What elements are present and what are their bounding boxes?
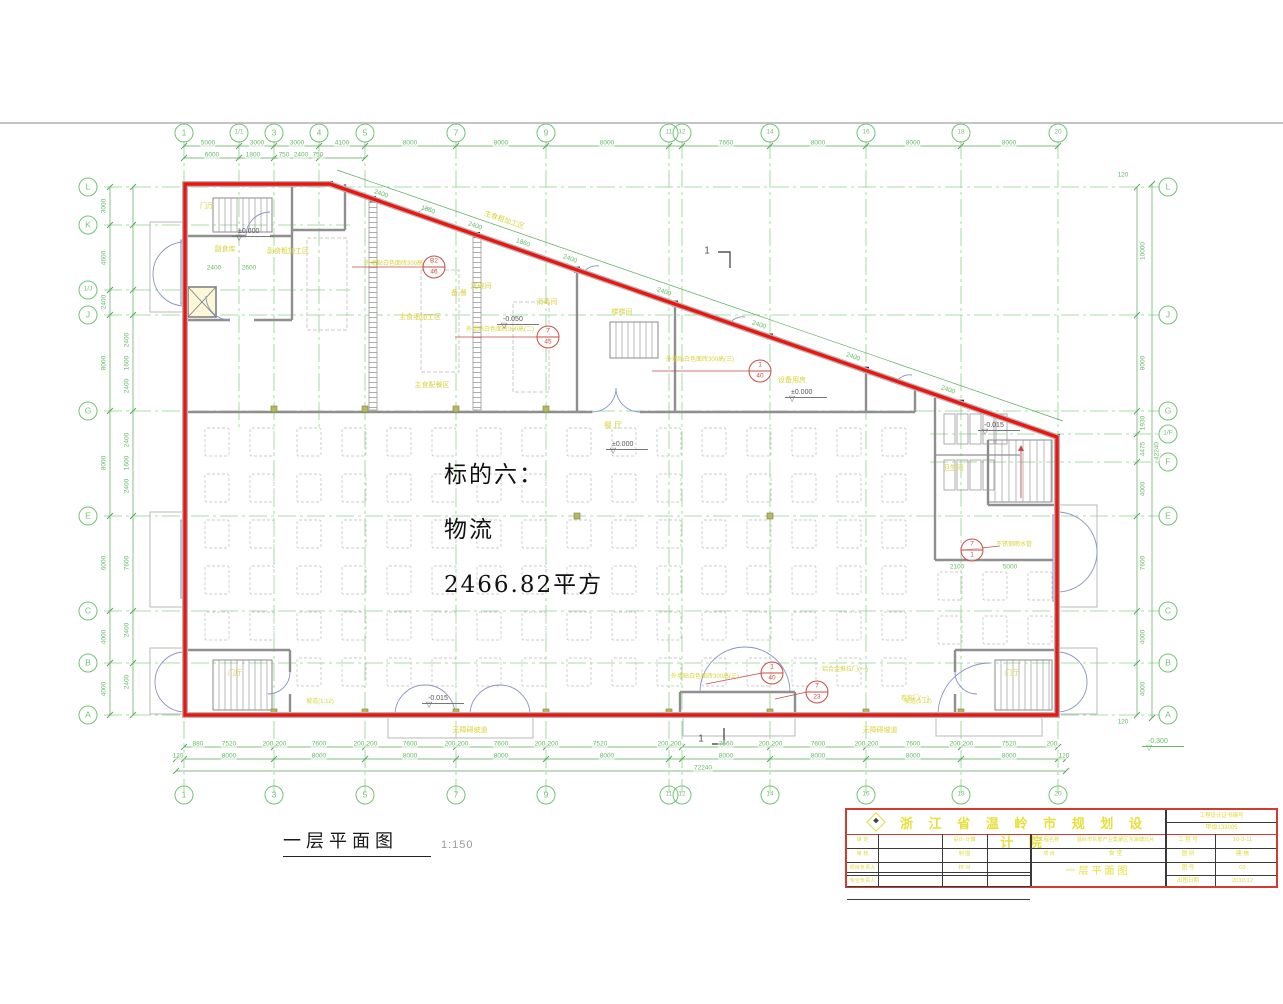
dining-table bbox=[983, 616, 1007, 644]
axis-bubble: 1 bbox=[175, 124, 194, 143]
dining-table bbox=[702, 520, 726, 548]
kitchen-equipment bbox=[307, 238, 347, 330]
axis-bubble: 5 bbox=[356, 786, 375, 805]
axis-bubble: F bbox=[1159, 453, 1178, 472]
dining-table bbox=[747, 520, 771, 548]
dimension-text: 2400 bbox=[124, 378, 131, 394]
detail-callout: 745 bbox=[537, 326, 560, 349]
room-label: 坡道(1:12) bbox=[904, 698, 932, 706]
title-block: 浙 江 省 温 岭 市 规 划 设 计 院 一层平面图 工程设计证书编号甲级13… bbox=[845, 808, 1278, 888]
section-mark-number: 1 bbox=[704, 246, 710, 257]
dining-table bbox=[1028, 616, 1052, 644]
dimension-text: 200 bbox=[771, 741, 784, 748]
dining-table bbox=[702, 658, 726, 686]
dimension-text: 42240 bbox=[1154, 441, 1161, 461]
titleblock-line bbox=[1030, 862, 1165, 863]
caption-underline bbox=[283, 856, 431, 857]
dining-table bbox=[1028, 572, 1052, 600]
titleblock-field-value: 10-3-11 bbox=[1209, 837, 1276, 844]
dimension-text: 8000 bbox=[1001, 753, 1017, 760]
column bbox=[543, 406, 549, 412]
dining-table bbox=[522, 658, 546, 686]
room-label: 门厅 bbox=[1005, 670, 1019, 678]
callout-sheet-number: 40 bbox=[762, 674, 783, 683]
dining-table bbox=[342, 658, 366, 686]
axis-bubble: 14 bbox=[761, 124, 780, 143]
dining-table bbox=[387, 658, 411, 686]
dimension-text: 8000 bbox=[493, 140, 509, 147]
cad-floorplan-sheet: 标的六： 物流 2466.82平方 一层平面图 1:150 浙 江 省 温 岭 … bbox=[0, 0, 1283, 1004]
dimension-text: 7520 bbox=[1001, 741, 1017, 748]
titleblock-line bbox=[847, 834, 1276, 835]
dimension-text: 200 bbox=[457, 741, 470, 748]
room-label: 坡道(1:12) bbox=[306, 698, 334, 706]
dining-table bbox=[747, 612, 771, 640]
room-label: 门厅 bbox=[228, 670, 242, 678]
hatched-wall bbox=[473, 236, 481, 410]
room-label: 不锈钢雨水管 bbox=[996, 541, 1032, 549]
axis-bubble: 1/1 bbox=[230, 124, 249, 143]
dimension-text: 200 bbox=[657, 741, 670, 748]
level-marker: -0.050▽ bbox=[503, 316, 523, 323]
door-swing bbox=[1057, 552, 1097, 592]
dimension-text: 3000 bbox=[249, 140, 265, 147]
dining-table bbox=[837, 428, 861, 456]
dimension-text: 5000 bbox=[200, 140, 216, 147]
level-line bbox=[497, 324, 539, 325]
level-line bbox=[785, 397, 827, 398]
dining-table bbox=[882, 658, 906, 686]
dining-table bbox=[837, 474, 861, 502]
axis-bubble: 16 bbox=[857, 124, 876, 143]
dining-table bbox=[205, 474, 229, 502]
titleblock-line bbox=[1167, 862, 1276, 863]
cert-number: 甲级133005 bbox=[1167, 825, 1276, 832]
dimension-text: 120 bbox=[1117, 172, 1130, 179]
dimension-text: 120 bbox=[1058, 753, 1071, 760]
dining-table bbox=[297, 566, 321, 594]
dining-table bbox=[882, 520, 906, 548]
section-mark-line bbox=[718, 252, 730, 268]
dimension-text: 200 bbox=[854, 741, 867, 748]
toilet-stall bbox=[970, 414, 981, 444]
dimension-text: 2400 bbox=[206, 265, 222, 272]
titleblock-field-label: 图 号 bbox=[1167, 865, 1209, 872]
titleblock-field-label: 图 别 bbox=[1167, 851, 1209, 858]
toilet-stall bbox=[944, 414, 955, 444]
dining-table bbox=[792, 612, 816, 640]
dining-table bbox=[882, 612, 906, 640]
dining-table bbox=[250, 566, 274, 594]
detail-callout: 140 bbox=[761, 662, 784, 685]
dimension-text: 8000 bbox=[599, 753, 615, 760]
detail-callout: 71 bbox=[961, 539, 984, 562]
dining-table bbox=[477, 658, 501, 686]
column bbox=[362, 406, 368, 412]
dining-table bbox=[938, 616, 962, 644]
dimension-text: 200 bbox=[534, 741, 547, 748]
dimension-text: 880 bbox=[192, 741, 205, 748]
column bbox=[453, 406, 459, 412]
dining-table bbox=[747, 474, 771, 502]
dimension-text: 2400 bbox=[293, 152, 309, 159]
dimension-text: 200 bbox=[867, 741, 880, 748]
dimension-text: 750 bbox=[312, 152, 325, 159]
dining-table bbox=[702, 474, 726, 502]
level-marker: ±0.000▽ bbox=[791, 389, 812, 396]
axis-grid bbox=[104, 141, 1160, 793]
axis-bubble: L bbox=[79, 178, 98, 197]
door-swing bbox=[268, 672, 290, 694]
dining-table bbox=[387, 566, 411, 594]
dimension-text: 7600 bbox=[402, 741, 418, 748]
porch-ramp bbox=[150, 222, 185, 312]
axis-bubble: A bbox=[1159, 706, 1178, 725]
dining-table bbox=[297, 612, 321, 640]
dimension-text: 4000 bbox=[1140, 681, 1147, 697]
door-swing bbox=[153, 242, 185, 274]
dimension-text: 2400 bbox=[124, 622, 131, 638]
door-swing bbox=[155, 652, 185, 682]
titleblock-role-label: 项目负责人 bbox=[847, 865, 878, 872]
titleblock-line bbox=[847, 848, 1030, 849]
institute-name: 浙 江 省 温 岭 市 规 划 设 计 院 bbox=[889, 813, 1159, 851]
axis-bubble: 9 bbox=[537, 124, 556, 143]
dining-table bbox=[250, 612, 274, 640]
titleblock-field-value: 建 施 bbox=[1209, 851, 1276, 858]
dimension-text: 7520 bbox=[221, 741, 237, 748]
detail-callout: 723 bbox=[806, 681, 829, 704]
drawing-caption: 一层平面图 1:150 bbox=[283, 827, 431, 857]
level-line bbox=[606, 449, 648, 450]
callout-detail-number: 7 bbox=[807, 682, 828, 693]
dimension-text: 2400 bbox=[124, 478, 131, 494]
axis-bubble: E bbox=[79, 507, 98, 526]
room-label: 外墙贴白色面砖300高(三) bbox=[671, 673, 739, 681]
dimension-text: 200 bbox=[262, 741, 275, 748]
dimension-text: 7600 bbox=[311, 741, 327, 748]
door-swing bbox=[955, 672, 977, 694]
axis-bubble: 3 bbox=[265, 786, 284, 805]
room-label: 副食粗加工区 bbox=[267, 248, 309, 256]
dimension-text: 7600 bbox=[493, 741, 509, 748]
staircase bbox=[213, 660, 272, 710]
axis-bubble: L bbox=[1159, 178, 1178, 197]
dimension-text: 5000 bbox=[1002, 564, 1018, 571]
item-label: 项 目 bbox=[1032, 851, 1066, 858]
axis-bubble: C bbox=[79, 602, 98, 621]
level-line bbox=[1142, 746, 1184, 747]
dining-table bbox=[612, 474, 636, 502]
axis-bubble: 12 bbox=[673, 786, 692, 805]
axis-bubble: 1/J bbox=[79, 281, 98, 300]
dining-table bbox=[983, 572, 1007, 600]
toilet-stall bbox=[957, 414, 968, 444]
axis-bubble: 18 bbox=[952, 786, 971, 805]
room-label: 副食库 bbox=[215, 246, 236, 254]
axis-bubble: 12 bbox=[673, 124, 692, 143]
dining-table bbox=[250, 520, 274, 548]
room-label: 无障碍坡道 bbox=[863, 727, 898, 735]
dimension-text: 4000 bbox=[101, 629, 108, 645]
dining-table bbox=[792, 520, 816, 548]
room-label: 外墙贴白色面砖300高(三) bbox=[666, 356, 734, 364]
callout-sheet-number: 1 bbox=[962, 551, 983, 560]
dimension-text: 2400 bbox=[124, 432, 131, 448]
titleblock-field-value: 2010.12 bbox=[1209, 878, 1276, 885]
dimension-text: 8000 bbox=[810, 753, 826, 760]
door-swing bbox=[1057, 682, 1087, 712]
axis-bubble: B bbox=[1159, 654, 1178, 673]
dimension-text: 8000 bbox=[1140, 355, 1147, 371]
dimension-text: 750 bbox=[278, 152, 291, 159]
titleblock-line bbox=[847, 862, 1030, 863]
dining-table bbox=[792, 474, 816, 502]
titleblock-line bbox=[878, 834, 879, 886]
staircase bbox=[213, 198, 272, 232]
dining-table bbox=[882, 428, 906, 456]
dimension-text: 200 bbox=[353, 741, 366, 748]
dimension-text: 200 bbox=[758, 741, 771, 748]
level-marker: ±0.000▽ bbox=[612, 441, 633, 448]
dimension-text: 200 bbox=[366, 741, 379, 748]
dimension-text: 4000 bbox=[1140, 481, 1147, 497]
detail-callout: 140 bbox=[749, 360, 772, 383]
callout-detail-number: 7 bbox=[962, 540, 983, 551]
dimension-text: 2400 bbox=[124, 674, 131, 690]
dining-table bbox=[837, 520, 861, 548]
dining-table bbox=[205, 428, 229, 456]
room-label: 外墙贴白色面砖300高(二) bbox=[466, 326, 534, 334]
dining-table bbox=[612, 658, 636, 686]
dimension-text: 7660 bbox=[718, 741, 734, 748]
dining-table bbox=[612, 612, 636, 640]
titleblock-line bbox=[1167, 875, 1276, 876]
door-swing bbox=[1057, 652, 1087, 682]
level-marker: -0.300▽ bbox=[1148, 738, 1168, 745]
dining-table bbox=[702, 612, 726, 640]
dining-table bbox=[342, 520, 366, 548]
institute-logo-icon bbox=[866, 812, 886, 832]
titleblock-line bbox=[847, 875, 1030, 876]
dimension-text: 120 bbox=[1117, 719, 1130, 726]
door-swing bbox=[938, 663, 990, 715]
highlight-line-1: 标的六： bbox=[444, 448, 603, 503]
highlight-annotation: 标的六： 物流 2466.82平方 bbox=[444, 448, 603, 613]
dimension-text: 7600 bbox=[124, 555, 131, 571]
dimension-text: 8000 bbox=[810, 140, 826, 147]
axis-bubble: C bbox=[1159, 602, 1178, 621]
dimension-text: 8000 bbox=[905, 753, 921, 760]
axis-bubble: 20 bbox=[1049, 786, 1068, 805]
callout-sheet-number: 45 bbox=[538, 338, 559, 347]
door-swing bbox=[500, 685, 530, 715]
dining-table bbox=[387, 428, 411, 456]
dining-table bbox=[792, 428, 816, 456]
dining-table bbox=[250, 428, 274, 456]
dining-table bbox=[882, 566, 906, 594]
highlight-line-2: 物流 bbox=[444, 503, 603, 558]
axis-bubble: G bbox=[1159, 402, 1178, 421]
dimension-text: 200 bbox=[275, 741, 288, 748]
dining-table bbox=[702, 566, 726, 594]
axis-bubble: 1 bbox=[175, 786, 194, 805]
dimension-text: 7660 bbox=[718, 140, 734, 147]
axis-bubble: 7 bbox=[447, 786, 466, 805]
dimension-text: 200 bbox=[1046, 741, 1059, 748]
room-label: 主食细加工区 bbox=[399, 314, 441, 322]
titleblock-line bbox=[847, 899, 1030, 900]
dimension-text: 7520 bbox=[592, 741, 608, 748]
section-mark-number: 1 bbox=[698, 734, 704, 745]
titleblock-drawing-title: 一层平面图 bbox=[1031, 862, 1165, 877]
door-swing bbox=[592, 388, 616, 412]
dimension-text: 8000 bbox=[101, 355, 108, 371]
dining-table bbox=[747, 428, 771, 456]
titleblock-role-label: 制 图 bbox=[942, 851, 987, 858]
dimension-text: 3000 bbox=[101, 198, 108, 214]
dining-table bbox=[522, 612, 546, 640]
level-marker: -0.015▽ bbox=[428, 695, 448, 702]
axis-bubble: K bbox=[79, 216, 98, 235]
column bbox=[767, 513, 773, 519]
room-label: 门厅 bbox=[200, 203, 214, 211]
titleblock-line bbox=[987, 834, 988, 886]
dimension-text: 1930 bbox=[1140, 415, 1147, 431]
axis-bubble: 7 bbox=[447, 124, 466, 143]
dining-table bbox=[702, 428, 726, 456]
dimension-text: 8000 bbox=[311, 753, 327, 760]
cert-label: 工程设计证书编号 bbox=[1167, 813, 1276, 820]
axis-bubble: 5 bbox=[356, 124, 375, 143]
dimension-text: 1600 bbox=[124, 355, 131, 371]
dimension-text: 200 bbox=[962, 741, 975, 748]
dimension-text: 4000 bbox=[101, 681, 108, 697]
dining-table bbox=[432, 658, 456, 686]
dining-table bbox=[477, 612, 501, 640]
dimension-text: 4000 bbox=[1140, 629, 1147, 645]
callout-sheet-number: 46 bbox=[424, 268, 445, 277]
dining-table bbox=[792, 566, 816, 594]
column bbox=[271, 406, 277, 412]
dimension-text: 8000 bbox=[221, 753, 237, 760]
dimension-text: 6000 bbox=[204, 152, 220, 159]
dining-table bbox=[837, 566, 861, 594]
dining-table bbox=[342, 566, 366, 594]
dimension-text: 200 bbox=[670, 741, 683, 748]
dimension-text: 3000 bbox=[289, 140, 305, 147]
axis-bubble: E bbox=[1159, 507, 1178, 526]
drawing-caption-title: 一层平面图 bbox=[283, 827, 431, 853]
axis-bubble: A bbox=[79, 706, 98, 725]
project-name-label: 工程名称 bbox=[1032, 837, 1066, 844]
room-label: 卫生间 bbox=[943, 465, 964, 473]
dining-table bbox=[387, 520, 411, 548]
axis-bubble: B bbox=[79, 654, 98, 673]
axis-bubble: J bbox=[1159, 306, 1178, 325]
dimension-text: 1800 bbox=[245, 152, 261, 159]
door-swing bbox=[470, 685, 500, 715]
dining-table bbox=[342, 612, 366, 640]
dimension-text: 8000 bbox=[599, 140, 615, 147]
dimension-text: 7600 bbox=[905, 741, 921, 748]
level-marker: ±0.000▽ bbox=[238, 228, 259, 235]
dining-table bbox=[387, 612, 411, 640]
dining-table bbox=[297, 428, 321, 456]
dimension-text: 4475 bbox=[1140, 441, 1147, 457]
dining-table bbox=[205, 520, 229, 548]
dimension-text: 2100 bbox=[949, 564, 965, 571]
item-value: 食 堂 bbox=[1066, 851, 1165, 858]
staircase bbox=[995, 660, 1052, 710]
room-label: 铝合金推拉门(一) bbox=[822, 666, 868, 674]
titleblock-line bbox=[1165, 822, 1276, 823]
dimension-text: 2400 bbox=[124, 332, 131, 348]
callout-detail-number: B2 bbox=[424, 257, 445, 268]
dimension-text: 8000 bbox=[905, 140, 921, 147]
highlight-line-3: 2466.82平方 bbox=[444, 558, 603, 613]
dimension-text: 8000 bbox=[493, 753, 509, 760]
axis-bubble: 20 bbox=[1049, 124, 1068, 143]
dining-table bbox=[387, 474, 411, 502]
dining-table bbox=[837, 612, 861, 640]
dimension-text: 200 bbox=[949, 741, 962, 748]
door-swing bbox=[395, 685, 425, 715]
dimension-text: 8000 bbox=[402, 140, 418, 147]
dining-table bbox=[747, 566, 771, 594]
porch-ramp bbox=[936, 716, 1042, 736]
dining-table bbox=[567, 658, 591, 686]
dining-table bbox=[297, 520, 321, 548]
dining-table bbox=[342, 428, 366, 456]
room-label: 洗碗间 bbox=[471, 283, 492, 291]
toilet-stall bbox=[970, 460, 981, 490]
dining-table bbox=[612, 520, 636, 548]
door-swing bbox=[155, 682, 185, 712]
dimension-text: 8000 bbox=[718, 753, 734, 760]
level-line bbox=[422, 703, 464, 704]
room-label: 餐 厅 bbox=[604, 422, 622, 430]
dining-table bbox=[205, 612, 229, 640]
porch-ramp bbox=[150, 512, 185, 607]
dimension-text: 2400 bbox=[101, 294, 108, 310]
dimension-lines bbox=[107, 143, 1155, 774]
dimension-text: 120 bbox=[172, 753, 185, 760]
room-label: 备 餐 bbox=[451, 290, 467, 298]
dimension-text: 8000 bbox=[1001, 140, 1017, 147]
axis-bubble: 16 bbox=[857, 786, 876, 805]
callout-sheet-number: 23 bbox=[807, 693, 828, 702]
dining-table bbox=[432, 612, 456, 640]
titleblock-field-value: 03 bbox=[1209, 865, 1276, 872]
callout-sheet-number: 40 bbox=[750, 372, 771, 381]
axis-bubble: 4 bbox=[310, 124, 329, 143]
axis-bubble: G bbox=[79, 402, 98, 421]
dimension-text: 8000 bbox=[101, 455, 108, 471]
room-label: 主食配餐区 bbox=[415, 382, 450, 390]
titleblock-line bbox=[1030, 848, 1165, 849]
dimension-text: 1600 bbox=[124, 455, 131, 471]
door-swing bbox=[1057, 512, 1097, 552]
titleblock-role-label: 设计·计算 bbox=[942, 837, 987, 844]
project-name-value: 温岭市东部产业集聚区东海塘北片 bbox=[1066, 837, 1165, 844]
dining-table bbox=[938, 572, 962, 600]
room-label: 楼梯间 bbox=[612, 309, 633, 317]
level-line bbox=[232, 236, 274, 237]
titleblock-line bbox=[847, 886, 1030, 887]
axis-bubble: 14 bbox=[761, 786, 780, 805]
axis-bubble: 3 bbox=[265, 124, 284, 143]
